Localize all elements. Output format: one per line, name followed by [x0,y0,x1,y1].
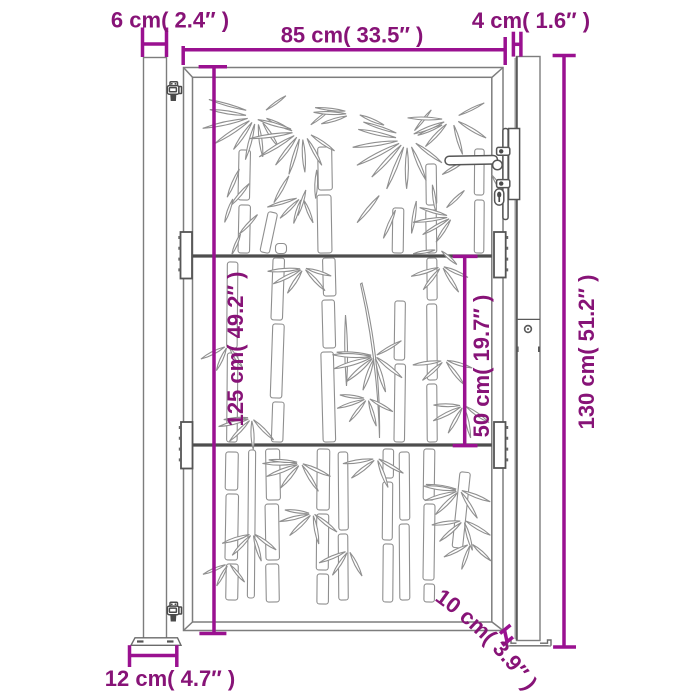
svg-text:130 cm( 51.2″ ): 130 cm( 51.2″ ) [574,275,599,430]
svg-text:125 cm( 49.2″ ): 125 cm( 49.2″ ) [223,272,248,427]
svg-text:4 cm( 1.6″ ): 4 cm( 1.6″ ) [472,8,590,33]
svg-text:12 cm( 4.7″ ): 12 cm( 4.7″ ) [105,666,235,691]
svg-text:50 cm( 19.7″ ): 50 cm( 19.7″ ) [469,295,494,438]
svg-text:85 cm( 33.5″ ): 85 cm( 33.5″ ) [281,23,424,48]
svg-text:6 cm( 2.4″ ): 6 cm( 2.4″ ) [111,8,229,33]
